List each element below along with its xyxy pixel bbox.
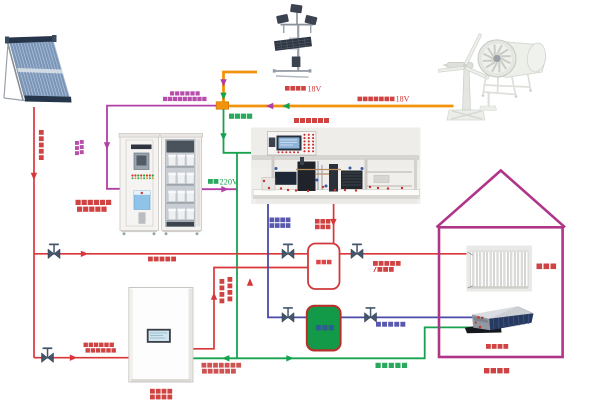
svg-text:220V: 220V	[220, 177, 238, 186]
svg-text:18V: 18V	[308, 84, 322, 93]
svg-text:18V: 18V	[396, 95, 410, 104]
